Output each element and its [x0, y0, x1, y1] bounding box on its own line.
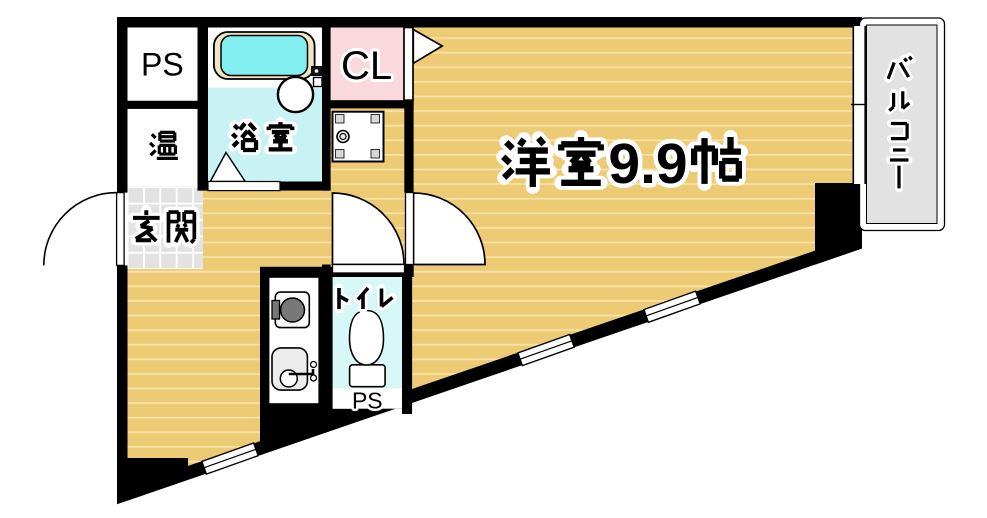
svg-text:PS: PS — [352, 388, 383, 414]
svg-text:CL: CL — [341, 44, 392, 88]
svg-text:9.9: 9.9 — [608, 132, 687, 196]
svg-text:PS: PS — [141, 47, 184, 83]
